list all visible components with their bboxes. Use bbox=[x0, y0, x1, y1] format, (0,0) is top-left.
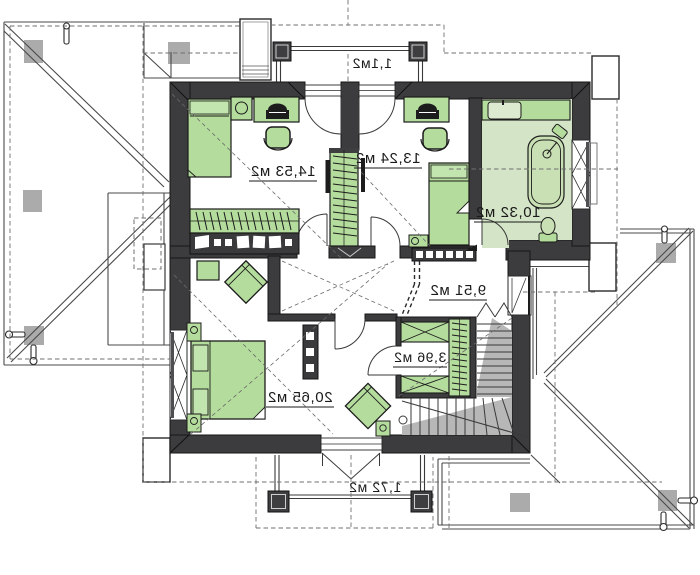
svg-text:3,96 м2: 3,96 м2 bbox=[394, 349, 447, 365]
svg-text:14,53 м2: 14,53 м2 bbox=[250, 163, 315, 180]
svg-text:20,65 м2: 20,65 м2 bbox=[267, 389, 332, 406]
svg-text:13,24 м2: 13,24 м2 bbox=[355, 150, 420, 167]
svg-text:9,51 м2: 9,51 м2 bbox=[430, 282, 486, 299]
svg-text:10,32 м2: 10,32 м2 bbox=[475, 204, 540, 221]
svg-text:1,1м2: 1,1м2 bbox=[352, 55, 392, 71]
svg-text:1,72 м2: 1,72 м2 bbox=[349, 479, 402, 495]
